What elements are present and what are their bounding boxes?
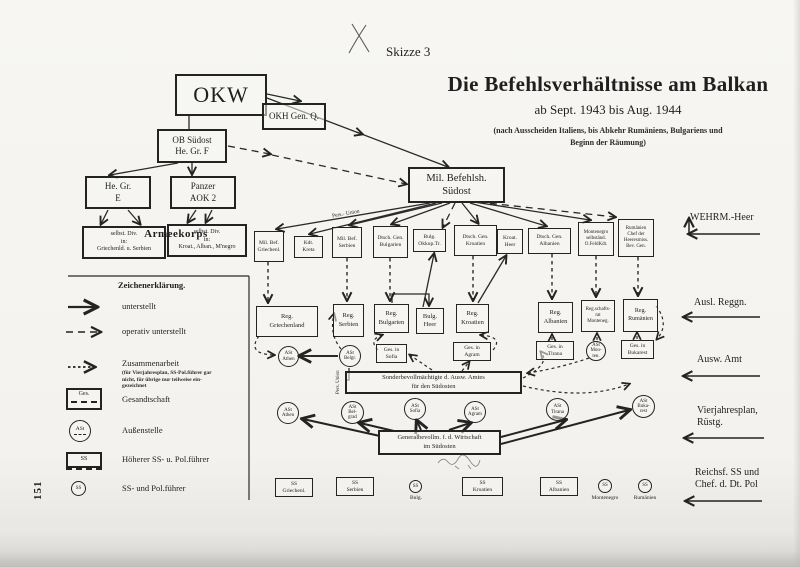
node-kroat-heer: Kroat. Heer (497, 229, 523, 254)
label-ss-rumaenien: Rumänien (622, 495, 668, 502)
dash-ob-to-milbef-1 (228, 146, 270, 154)
legend-ast-text: ASt (76, 427, 85, 433)
node-kdt-kreta: Kdt. Kreta (294, 236, 323, 258)
node-reg-albanien: Reg. Albanien (538, 302, 573, 333)
label-vierjahresplan: Vierjahresplan, Rüstg. (697, 405, 758, 429)
node-reg-griechenland: Reg. Griechenland (256, 306, 318, 337)
legend-label-ssf: SS- und Pol.führer (122, 483, 186, 493)
legend-label-aussenstelle: Außenstelle (122, 425, 163, 435)
legend-ges-text: Ges. (79, 391, 90, 399)
pencil-annotation (438, 455, 480, 469)
node-ges-tirana: Ges. in Tirana (536, 341, 574, 360)
node-ob-suedost: OB Südost He. Gr. F (157, 129, 227, 163)
node-reg-bulgarien: Reg. Bulgarien (374, 304, 409, 333)
node-ss-kroatien: SS Kroatien (462, 477, 503, 496)
legend-label-hoeherer-ssf: Höherer SS- u. Pol.führer (122, 454, 209, 464)
node-ss-serbien: SS Serbien (336, 477, 374, 496)
node-ast-sofia: ASt Sofia (404, 398, 426, 420)
fan-milbef-kroatien (462, 203, 478, 223)
node-reg-rumaenien: Reg. Rumänien (623, 299, 658, 332)
arrow-regkroatien-to-kroatheer (478, 256, 506, 303)
sketch-label: Skizze 3 (386, 44, 430, 60)
legend-label-unterstellt: unterstellt (122, 301, 156, 311)
legend-note-zusammenarbeit: (für Vierjahresplan, SS-Pol.führer gar n… (122, 370, 248, 390)
node-regschaftsrat-montenegro: Reg.schafts- rat Monteneg. (581, 300, 615, 332)
node-okw: OKW (175, 74, 267, 116)
node-ast-agram: ASt Agram (464, 401, 486, 423)
label-wehrmacht-heer: WEHRM.-Heer (690, 212, 754, 224)
node-mil-bef-serbien: Mil. Bef. Serbien (332, 227, 362, 258)
node-ges-agram: Ges. in Agram (453, 342, 491, 361)
legend-samples (66, 307, 100, 367)
node-ast-tirana: ASt Tirana (546, 398, 569, 421)
node-bulg-heer: Bulg. Heer (416, 308, 444, 334)
node-ges-sofia: Ges. in Sofia (376, 344, 407, 363)
scan-edge-shadow-bottom (0, 551, 800, 567)
node-panzer-aok2: Panzer AOK 2 (170, 176, 236, 209)
node-ss-albanien: SS Albanien (540, 477, 578, 496)
node-dtsch-gen-bulgarien: Dtsch. Gen. Bulgarien (373, 226, 408, 258)
page-number: 151 (32, 481, 45, 501)
legend-symbol-gesandtschaft: Ges. (66, 388, 102, 410)
node-sonderbevollmaechtigte-ausw-amt: Sonderbevollmächtigte d. Ausw. Amtes für… (345, 371, 522, 394)
label-ausl-reggn: Ausl. Reggn. (694, 297, 747, 309)
dash-milbef-okkup (443, 203, 455, 227)
legend-title: Zeichenerklärung. (118, 280, 185, 290)
arrow-ob-to-hgre (110, 163, 178, 175)
node-ast-belgrad-upper: ASt Belgr. (339, 345, 361, 367)
arrow-pz-to-div2a (188, 210, 196, 222)
legend-ast-dashes (74, 434, 86, 435)
node-okh-genq: OKH Gen. Q. (262, 103, 326, 130)
legend-ges-dashes (71, 401, 97, 403)
node-montenegro-feldkdt: Montenegro selbständ. O.FeldKdt. (578, 222, 614, 256)
label-armeekorps: Armeekorps (128, 228, 224, 241)
legend-label-gesandtschaft: Gesandtschaft (122, 394, 170, 404)
dash-ob-to-milbef-2 (272, 155, 406, 184)
node-rumaenien-heeresmission: Rumänien Chef der Heeresmiss. Bev. Gen. (618, 219, 654, 257)
label-reichsfuehrer-ss: Reichsf. SS und Chef. d. Dt. Pol (695, 467, 759, 491)
node-ast-montenegro: ASt Mon- ten. (586, 341, 606, 361)
node-ast-athen-upper: ASt Athen (278, 346, 299, 367)
node-reg-kroatien: Reg. Kroatien (456, 304, 489, 333)
node-bulg-okkup-tr: Bulg. Okkup.Tr. (413, 229, 446, 252)
fan-milbef-montenegro (474, 202, 590, 220)
arrow-hgre-to-div1b (128, 210, 140, 224)
node-ast-belgrad-lower: ASt Bel- grad (341, 401, 364, 424)
label-ausw-amt: Ausw. Amt (697, 354, 742, 366)
node-ss-bulgarien-circle: SS (409, 480, 422, 493)
node-ss-griechenland: SS Griechenl. (275, 478, 313, 497)
legend-symbol-ssf: SS (71, 481, 86, 496)
legend-label-operativ: operativ unterstellt (122, 326, 186, 336)
page-title: Die Befehlsverhältnisse am Balkan (428, 72, 788, 97)
node-ss-rumaenien-circle: SS (638, 479, 652, 493)
scanned-page: Skizze 3 Die Befehlsverhältnisse am Balk… (0, 0, 800, 567)
label-pers-union-vertical: Pers. Union (336, 370, 342, 394)
page-note-2: Beginn der Räumung) (420, 138, 796, 148)
node-ss-montenegro-circle: SS (598, 479, 612, 493)
legend-hssf-dashes (66, 468, 102, 470)
node-generalbevollmaechtigter-wirtschaft: Generalbevollm. f. d. Wirtschaft im Südo… (378, 430, 501, 455)
legend-label-zusammenarbeit: Zusammenarbeit (122, 358, 179, 368)
node-dtsch-gen-albanien: Dtsch. Gen. Albanien (528, 228, 571, 254)
node-dtsch-gen-kroatien: Dtsch. Gen. Kroatien (454, 225, 497, 256)
arrow-hgre-to-div1a (101, 210, 108, 224)
page-note-1: (nach Ausscheiden Italiens, bis Abkehr R… (420, 126, 796, 136)
dash-milbef-rumchef (478, 202, 615, 217)
page-subtitle: ab Sept. 1943 bis Aug. 1944 (428, 102, 788, 118)
node-ast-bukarest: ASt Buka- rest (632, 395, 655, 418)
vertical-dashed-links (268, 254, 638, 302)
scan-edge-shadow-right (793, 0, 800, 567)
legend-symbol-hoeherer-ssf: SS (66, 452, 102, 468)
node-heeresgruppe-e: He. Gr. E (85, 176, 151, 209)
handwritten-x-mark (349, 24, 369, 53)
legend-symbol-aussenstelle: ASt (69, 420, 91, 442)
node-ast-athen-lower: ASt Athen (277, 402, 299, 424)
node-reg-serbien: Reg. Serbien (333, 304, 364, 337)
node-mil-befehlshaber-suedost: Mil. Befehlsh. Südost (408, 167, 505, 203)
arrow-pz-to-div2b (206, 210, 212, 222)
node-ges-bukarest: Ges. in Bukarest (621, 340, 654, 359)
node-mil-bef-griechenland: Mil. Bef. Griechenl. (254, 231, 284, 262)
fan-milbef-albanien (470, 203, 546, 226)
label-ss-bulgarien: Bulg. (403, 495, 429, 502)
